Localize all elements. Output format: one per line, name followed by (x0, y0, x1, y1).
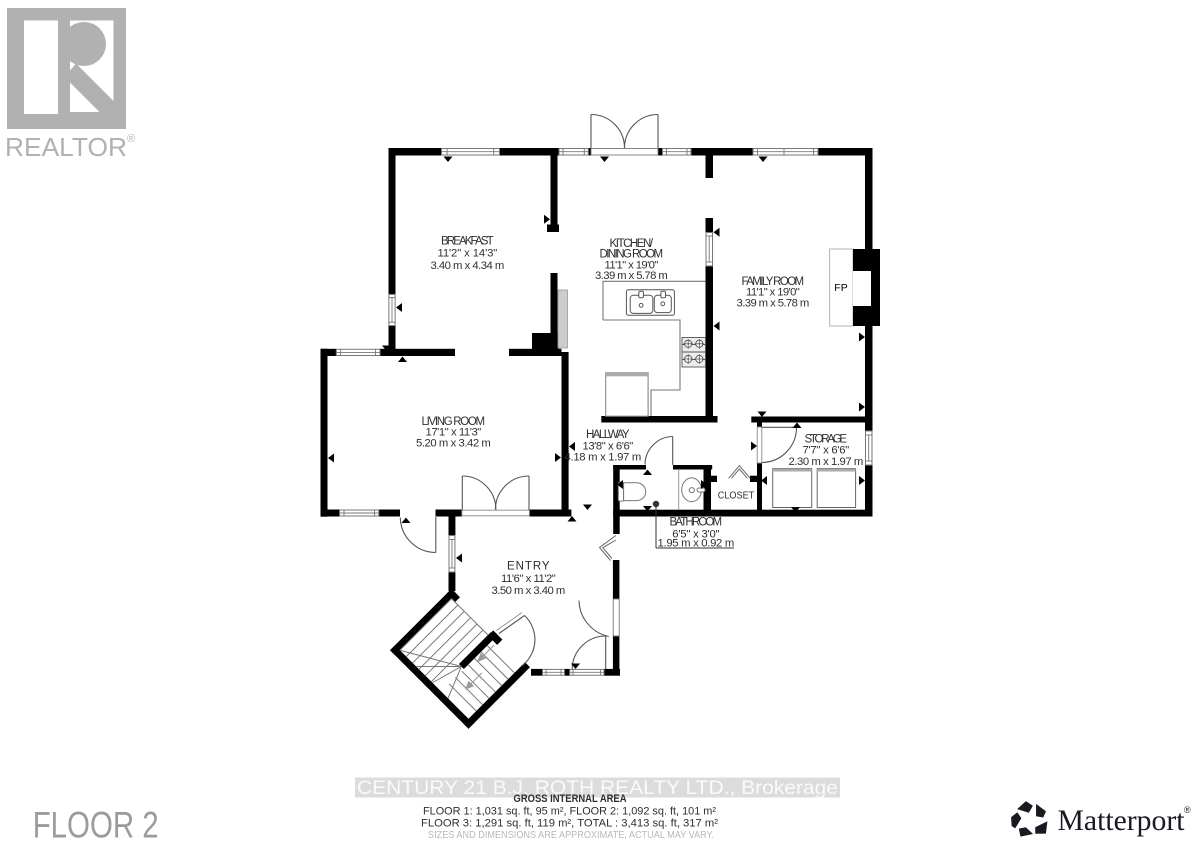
svg-text:BREAKFAST: BREAKFAST (441, 236, 494, 248)
svg-text:BATHROOM: BATHROOM (670, 516, 723, 528)
svg-text:FP: FP (834, 282, 847, 294)
svg-text:SIZES AND DIMENSIONS ARE APPRO: SIZES AND DIMENSIONS ARE APPROXIMATE, AC… (428, 829, 714, 841)
svg-text:®: ® (127, 133, 135, 145)
svg-text:4.18 m x 1.97 m: 4.18 m x 1.97 m (565, 451, 642, 463)
svg-text:7'7" x 6'6": 7'7" x 6'6" (803, 444, 850, 456)
svg-text:FLOOR 2: FLOOR 2 (33, 803, 159, 845)
svg-text:ENTRY: ENTRY (507, 560, 550, 572)
svg-text:DINING ROOM: DINING ROOM (600, 248, 664, 260)
svg-text:5.20 m x 3.42 m: 5.20 m x 3.42 m (416, 438, 491, 450)
svg-text:3.40 m x 4.34 m: 3.40 m x 4.34 m (431, 260, 505, 272)
svg-text:11'6" x 11'2": 11'6" x 11'2" (501, 573, 556, 585)
svg-text:REALTOR: REALTOR (5, 132, 127, 162)
svg-text:Matterport: Matterport (1058, 804, 1186, 837)
svg-text:CLOSET: CLOSET (718, 490, 755, 502)
svg-text:11'2" x 14'3": 11'2" x 14'3" (438, 247, 498, 259)
svg-text:17'1" x 11'3": 17'1" x 11'3" (426, 426, 482, 438)
svg-text:FLOOR 3: 1,291 sq. ft, 119 m²,: FLOOR 3: 1,291 sq. ft, 119 m², TOTAL : 3… (421, 818, 718, 830)
svg-text:HALLWAY: HALLWAY (586, 429, 630, 441)
svg-text:3.50 m x 3.40 m: 3.50 m x 3.40 m (492, 585, 566, 597)
svg-text:2.30 m x 1.97 m: 2.30 m x 1.97 m (789, 456, 864, 468)
svg-text:GROSS INTERNAL AREA: GROSS INTERNAL AREA (514, 793, 627, 805)
svg-text:®: ® (1184, 805, 1191, 815)
svg-text:3.39 m x 5.78 m: 3.39 m x 5.78 m (737, 297, 810, 309)
svg-text:3.39 m x 5.78 m: 3.39 m x 5.78 m (595, 270, 668, 282)
svg-text:1.95 m x 0.92 m: 1.95 m x 0.92 m (658, 537, 735, 549)
svg-text:FLOOR 1: 1,031 sq. ft, 95 m²,: FLOOR 1: 1,031 sq. ft, 95 m², FLOOR 2: 1… (423, 806, 716, 818)
